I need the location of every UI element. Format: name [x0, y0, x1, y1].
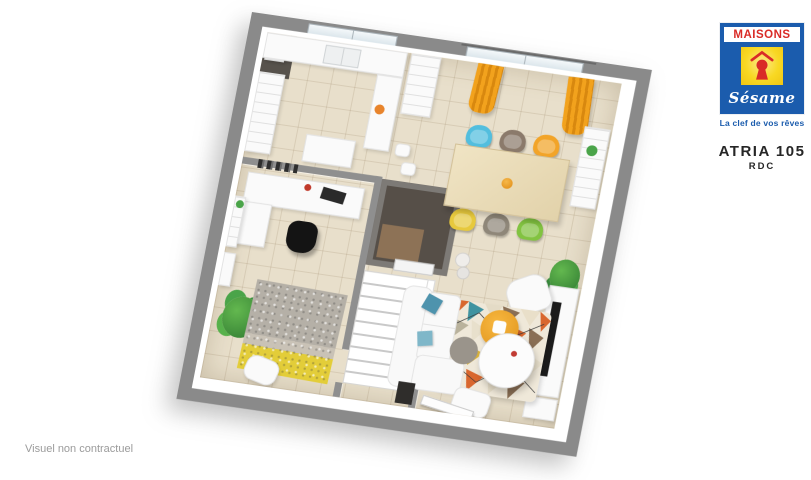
- model-block: ATRIA 105 RDC: [712, 143, 811, 172]
- brand-name-top: MAISONS: [724, 27, 800, 42]
- page: MAISONS Sésame La clef de vos rêves ATRI…: [0, 0, 811, 480]
- wc-floor: [376, 224, 424, 263]
- stool: [394, 143, 411, 158]
- table-decor: [510, 350, 517, 357]
- floorplan-3d-view: [176, 12, 652, 457]
- floor-tiles: [200, 32, 622, 428]
- brand-tagline: La clef de vos rêves: [712, 118, 811, 128]
- table-centerpiece: [501, 177, 514, 189]
- dining-chair-green: [515, 217, 545, 242]
- curtain-left: [467, 62, 505, 115]
- model-name: ATRIA 105: [712, 143, 811, 160]
- brand-name-script: Sésame: [724, 87, 800, 110]
- floor-level-label: RDC: [712, 161, 811, 172]
- kitchen-table: [301, 134, 356, 168]
- stool: [399, 162, 416, 177]
- dining-chair-gray: [482, 212, 512, 237]
- interior-wall-face: [192, 27, 637, 443]
- wall-shelf-books: [257, 159, 298, 173]
- kitchen-cabinet-divider: [400, 53, 441, 118]
- office-chair: [284, 219, 320, 254]
- decor-vase: [455, 266, 470, 281]
- wc-door: [393, 259, 435, 276]
- keyhole-roof-icon: [741, 47, 783, 85]
- maisons-sesame-logo: MAISONS Sésame: [720, 23, 804, 114]
- kitchen-tall-units: [244, 71, 285, 154]
- low-shelf: [218, 252, 236, 287]
- sideboard: [569, 126, 610, 209]
- wall-office-hall-2: [333, 382, 343, 398]
- disclaimer-text: Visuel non contractuel: [25, 443, 133, 455]
- branding-column: MAISONS Sésame La clef de vos rêves ATRI…: [712, 23, 811, 172]
- blue-pillow: [417, 331, 432, 347]
